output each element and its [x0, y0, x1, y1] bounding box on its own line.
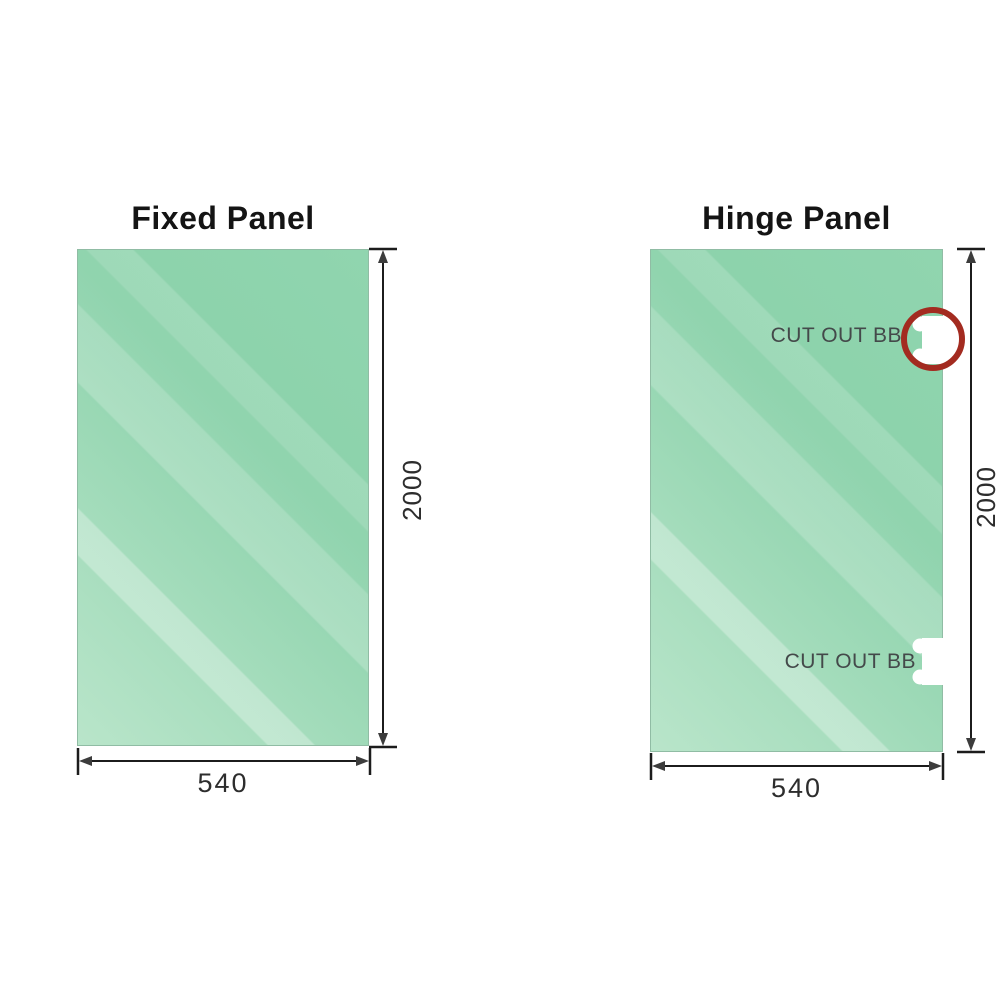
fixed-width-arrow-right-icon: [356, 756, 369, 766]
hinge-height-dimension-label: 2000: [975, 457, 997, 537]
hinge-height-arrow-up-icon: [966, 250, 976, 263]
cutout-bottom-label: CUT OUT BB: [754, 650, 916, 674]
dimension-overlay: [0, 0, 1000, 1000]
cutout-top-shape: [913, 316, 947, 364]
hinge-width-arrow-left-icon: [652, 761, 665, 771]
fixed-height-arrow-down-icon: [378, 733, 388, 746]
fixed-height-arrow-up-icon: [378, 250, 388, 263]
hinge-width-arrow-right-icon: [929, 761, 942, 771]
cutout-top-label: CUT OUT BB: [740, 324, 902, 348]
fixed-width-arrow-left-icon: [79, 756, 92, 766]
fixed-width-dimension-label: 540: [77, 768, 369, 799]
cutout-bottom-shape: [913, 638, 947, 685]
fixed-height-dimension: [369, 249, 397, 747]
hinge-width-dimension-label: 540: [650, 773, 943, 804]
hinge-height-arrow-down-icon: [966, 738, 976, 751]
diagram-canvas: Fixed Panel Hinge Panel: [0, 0, 1000, 1000]
fixed-height-dimension-label: 2000: [401, 450, 423, 530]
